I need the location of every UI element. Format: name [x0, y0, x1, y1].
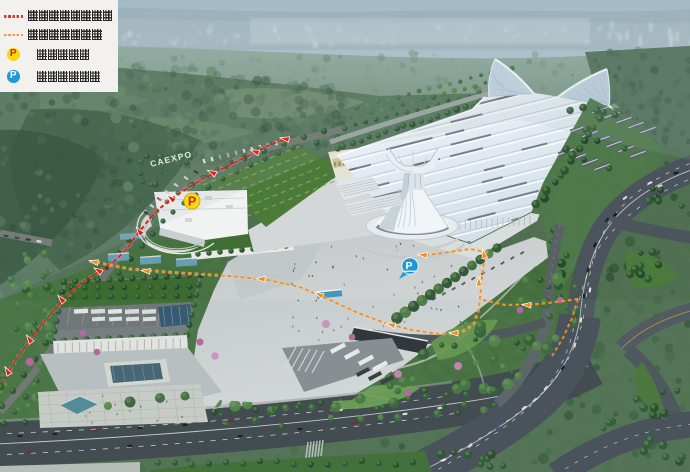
svg-text:P: P [405, 260, 412, 272]
svg-text:P: P [188, 195, 196, 209]
